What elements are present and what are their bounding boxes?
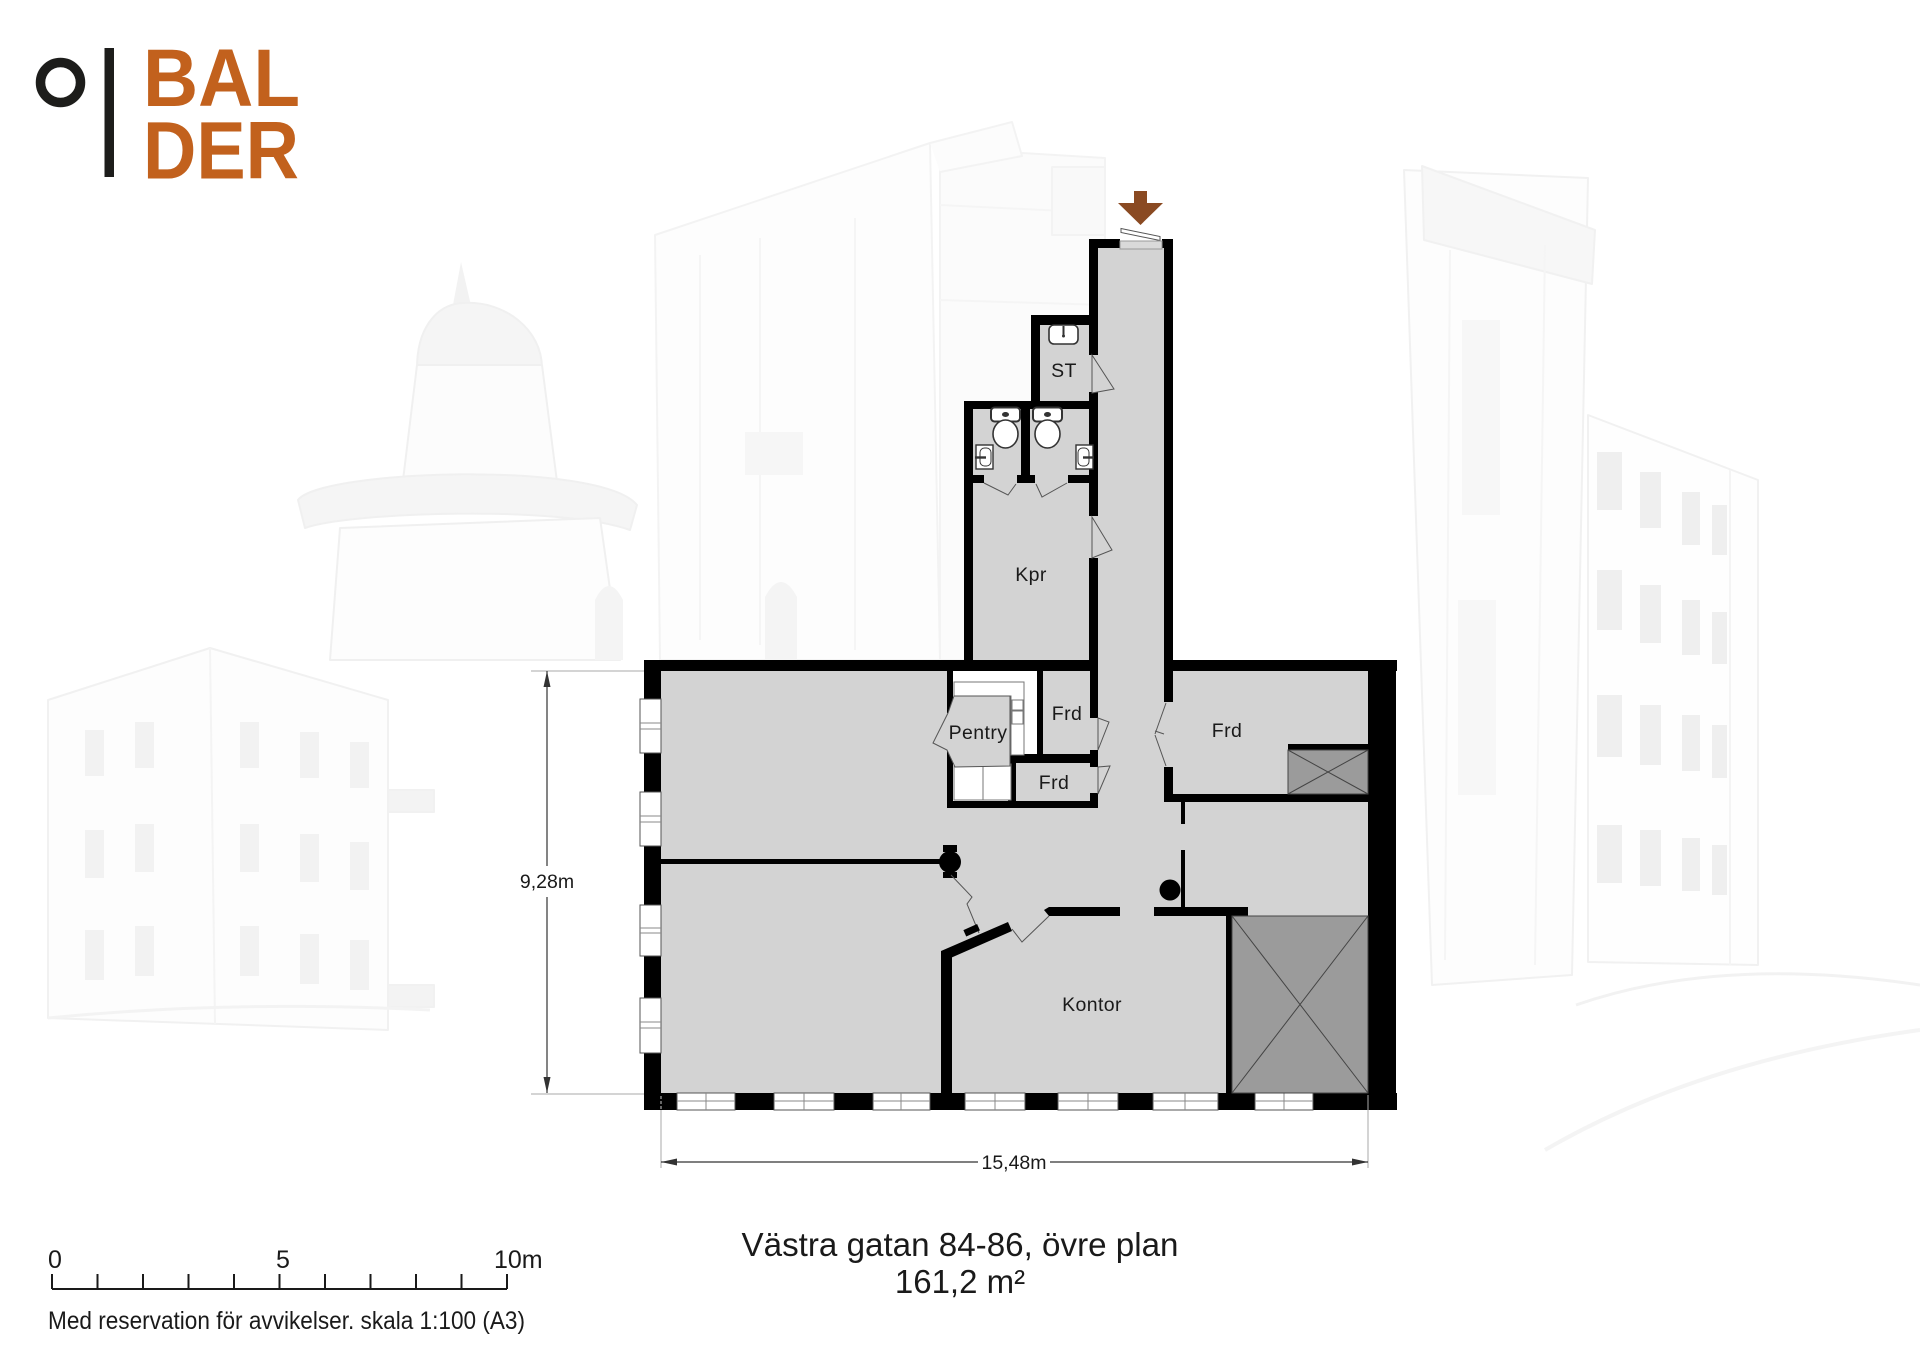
svg-text:Kpr: Kpr (1015, 564, 1047, 586)
svg-text:0: 0 (48, 1246, 62, 1274)
svg-text:ST: ST (1051, 360, 1077, 382)
svg-text:10m: 10m (494, 1246, 543, 1274)
svg-text:DER: DER (143, 106, 299, 197)
svg-text:Frd: Frd (1052, 703, 1082, 725)
svg-text:Västra gatan 84-86, övre plan: Västra gatan 84-86, övre plan (742, 1226, 1179, 1263)
svg-text:Med reservation för avvikelser: Med reservation för avvikelser. skala 1:… (48, 1307, 525, 1335)
svg-text:9,28m: 9,28m (520, 871, 574, 893)
svg-text:Pentry: Pentry (949, 722, 1008, 744)
svg-text:5: 5 (276, 1246, 290, 1274)
svg-text:15,48m: 15,48m (981, 1152, 1046, 1174)
svg-text:Frd: Frd (1039, 772, 1069, 794)
svg-text:Kontor: Kontor (1062, 994, 1122, 1016)
svg-text:161,2 m²: 161,2 m² (895, 1263, 1025, 1300)
svg-text:Frd: Frd (1212, 720, 1242, 742)
